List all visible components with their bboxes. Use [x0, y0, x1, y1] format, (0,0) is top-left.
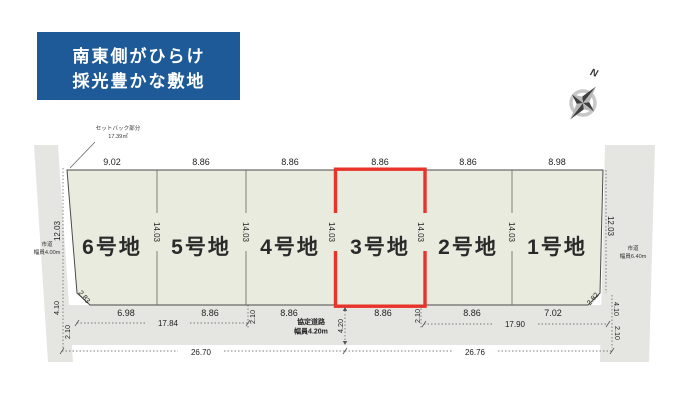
dim-left-offset: 2.10	[63, 325, 72, 339]
dim-span-left: 17.84	[158, 319, 179, 328]
road-bottom	[55, 305, 615, 345]
lot-label-3: 3号地	[350, 235, 410, 259]
depth-dim: 14.03	[507, 222, 516, 243]
dim-total-left: 26.70	[191, 348, 212, 357]
dim-top: 8.86	[281, 157, 299, 167]
dim-left-side: 12.03	[53, 220, 62, 241]
dim-right-offset: 4.10	[612, 302, 621, 316]
compass-north-label: N	[589, 67, 600, 80]
dim-road-width: 4.20	[336, 319, 345, 333]
dim-bottom: 8.86	[374, 308, 392, 318]
depth-dim: 14.03	[241, 222, 250, 243]
banner-line2: 採光豊かな敷地	[73, 71, 206, 91]
site-plan-page: 14.03 14.03 14.03 14.03 14.03 6号地 5号地 4号…	[0, 0, 680, 415]
depth-dim: 14.03	[327, 222, 336, 243]
lot-label-1: 1号地	[527, 235, 587, 259]
agreement-road-label: 協定道路	[297, 317, 326, 326]
dim-bottom: 8.86	[463, 308, 481, 318]
road-right-label: 市道	[627, 244, 639, 252]
lot-label-4: 4号地	[260, 235, 320, 259]
lot-label-6: 6号地	[82, 235, 142, 259]
headline-banner: 南東側がひらけ 採光豊かな敷地	[37, 32, 240, 100]
dim-bottom: 6.98	[117, 308, 135, 318]
banner-line1: 南東側がひらけ	[73, 46, 206, 66]
dim-right-side: 12.03	[606, 216, 615, 237]
lot-label-2: 2号地	[438, 235, 498, 259]
dim-bottom: 8.86	[201, 308, 219, 318]
road-left-label: 市道	[41, 240, 53, 248]
dim-left-offset: 4.10	[52, 301, 61, 315]
dim-top: 9.02	[103, 157, 121, 167]
compass-icon: N	[559, 67, 607, 128]
depth-dim: 14.03	[416, 222, 425, 243]
dim-top: 8.98	[548, 157, 566, 167]
dim-bottom: 7.02	[544, 308, 562, 318]
depth-dim: 14.03	[152, 222, 161, 243]
dim-top: 8.86	[459, 157, 477, 167]
dim-top: 8.86	[192, 157, 210, 167]
dim-total-right: 26.76	[465, 348, 486, 357]
setback-area: 17.39㎡	[108, 132, 128, 140]
road-left-width: 幅員4.00m	[34, 248, 61, 256]
agreement-road-width: 幅員4.20m	[294, 327, 328, 336]
road-right-width: 幅員6.40m	[620, 252, 647, 260]
dim-span-right: 17.90	[505, 320, 526, 329]
site-plan-canvas: 14.03 14.03 14.03 14.03 14.03 6号地 5号地 4号…	[0, 0, 680, 415]
dim-right-offset: 2.10	[613, 326, 622, 340]
dim-bottom: 8.86	[280, 308, 298, 318]
dim-mid-offset: 2.10	[413, 309, 422, 323]
dim-mid-offset: 2.10	[248, 310, 257, 324]
lot-label-5: 5号地	[171, 235, 231, 259]
setback-label: セットバック部分	[96, 124, 141, 132]
dim-top: 8.86	[371, 157, 389, 167]
